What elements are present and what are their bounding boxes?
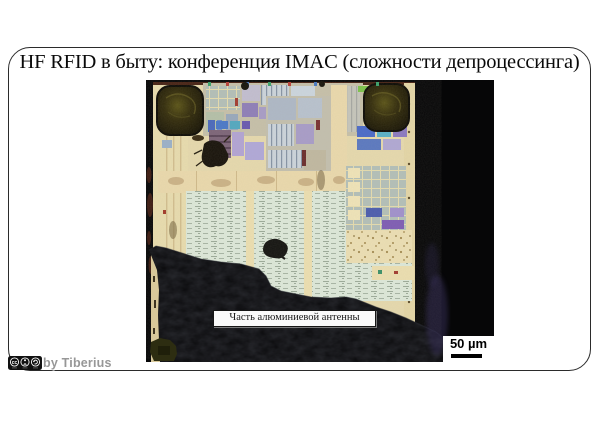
die-photo: Часть алюминиевой антенны 50 µm: [146, 80, 494, 362]
scale-bar-text: 50 µm: [443, 336, 494, 352]
svg-text:cc: cc: [12, 360, 18, 366]
slide-frame: HF RFID в быту: конференция IMAC (сложно…: [8, 47, 591, 371]
scale-bar-line: [451, 354, 482, 358]
credit-text: by Tiberius: [43, 356, 112, 370]
page: { "slide": { "title": "HF RFID в быту: к…: [0, 0, 600, 425]
annotation-label: Часть алюминиевой антенны: [213, 310, 376, 327]
scale-bar: 50 µm: [443, 336, 494, 362]
cc-license-badge: cc: [8, 356, 42, 370]
slide-title: HF RFID в быту: конференция IMAC (сложно…: [9, 51, 590, 74]
